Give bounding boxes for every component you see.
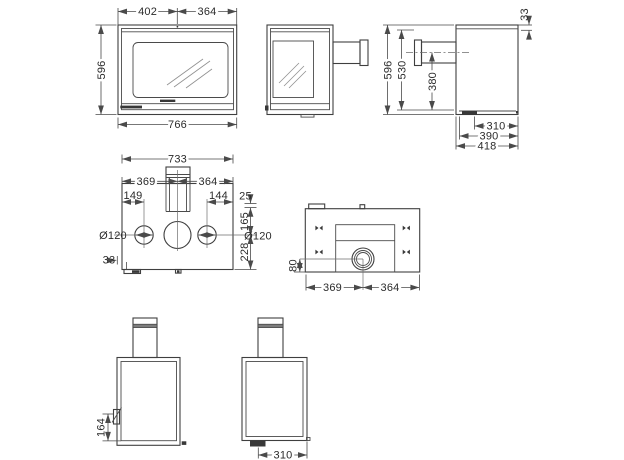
bottom-tab-left xyxy=(309,204,325,209)
mount-point-icon xyxy=(315,226,322,231)
bottom-tab-center xyxy=(360,205,365,209)
dim-depth-total: 418 xyxy=(478,141,497,153)
mount-point-icon xyxy=(403,226,410,231)
side-feet-view: 310 xyxy=(242,318,310,460)
rear-flue-flange xyxy=(360,40,368,66)
front-foot-block xyxy=(250,441,266,447)
rear-side-view: 596 530 380 33 310 390 418 xyxy=(382,8,532,152)
bottom-view: 80 369 364 xyxy=(287,204,419,294)
dim-foot-depth: 310 xyxy=(274,450,293,460)
dim-rear-depth: 228 xyxy=(239,243,251,262)
rear-flue-duct xyxy=(333,42,360,64)
dim-flue-to-right: 364 xyxy=(199,176,218,188)
dim-front-right-width: 364 xyxy=(198,6,217,18)
dim-front-total-width: 766 xyxy=(168,119,187,131)
stove-dimension-drawing: 402 364 596 766 xyxy=(0,0,624,460)
mount-point-icon xyxy=(315,250,322,255)
technical-drawing-canvas: 402 364 596 766 xyxy=(0,0,624,460)
dim-top-total-width: 733 xyxy=(168,154,187,166)
dim-front-gap: 25 xyxy=(239,191,252,203)
dim-latch-height: 164 xyxy=(95,418,107,437)
dim-top-offset: 33 xyxy=(519,8,531,21)
front-body-outline xyxy=(118,25,237,115)
dim-rearside-height: 596 xyxy=(382,61,394,80)
rear-foot-tick xyxy=(182,441,187,445)
side-foot xyxy=(301,115,314,118)
chimney-collar xyxy=(258,324,283,327)
dim-outlet-dia-right: Ø120 xyxy=(244,231,272,243)
top-view: 733 369 364 149 144 25 165 228 Ø120 Ø120… xyxy=(99,154,272,274)
dim-front-height: 596 xyxy=(96,61,108,80)
door-latch xyxy=(120,106,142,109)
top-pin-icon xyxy=(177,26,179,28)
mount-point-icon xyxy=(403,250,410,255)
brand-logo xyxy=(160,100,175,102)
foot-block xyxy=(462,111,477,115)
front-view: 402 364 596 766 xyxy=(96,6,237,131)
dim-flue-axis-depth: 165 xyxy=(239,212,251,231)
side-latch xyxy=(265,106,269,111)
rear-side-body-outline xyxy=(456,25,518,115)
dim-foot-offset: 33 xyxy=(103,255,116,267)
rear-view: 164 xyxy=(95,318,186,445)
dim-right-outlet-offset: 144 xyxy=(209,190,228,202)
rear-foot-tick xyxy=(516,111,519,114)
dim-outlet-dia-left: Ø120 xyxy=(99,230,127,242)
chimney-collar xyxy=(133,324,157,327)
dim-flue-axis-height: 380 xyxy=(427,72,439,91)
dim-front-left-width: 402 xyxy=(138,6,157,18)
dim-left-to-flue: 369 xyxy=(137,176,156,188)
dim-left-outlet-offset: 149 xyxy=(124,190,143,202)
rear-body-outline xyxy=(117,358,180,446)
dim-outlet-axis-offset: 80 xyxy=(287,259,299,272)
dim-rearside-body-height: 530 xyxy=(396,61,408,80)
side-feet-body-outline xyxy=(242,358,307,441)
glass-pane xyxy=(133,43,228,98)
side-view xyxy=(265,25,368,117)
dim-axis-to-right: 364 xyxy=(381,282,400,294)
dim-left-to-axis: 369 xyxy=(323,282,342,294)
